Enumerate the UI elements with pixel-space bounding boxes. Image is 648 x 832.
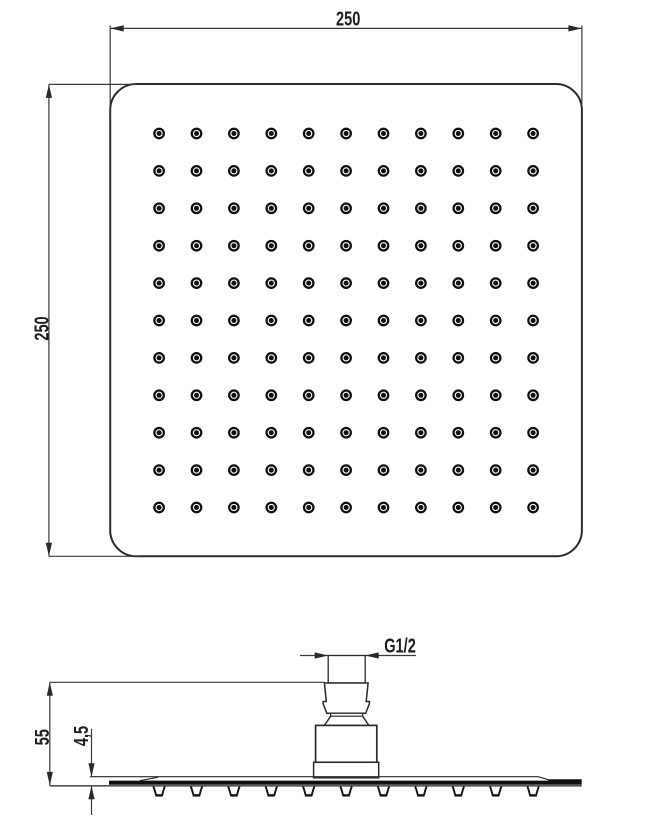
svg-text:250: 250 bbox=[30, 316, 53, 341]
svg-text:4,5: 4,5 bbox=[70, 726, 93, 747]
svg-text:G1/2: G1/2 bbox=[384, 634, 416, 657]
svg-text:250: 250 bbox=[336, 7, 361, 30]
svg-text:55: 55 bbox=[31, 729, 54, 745]
